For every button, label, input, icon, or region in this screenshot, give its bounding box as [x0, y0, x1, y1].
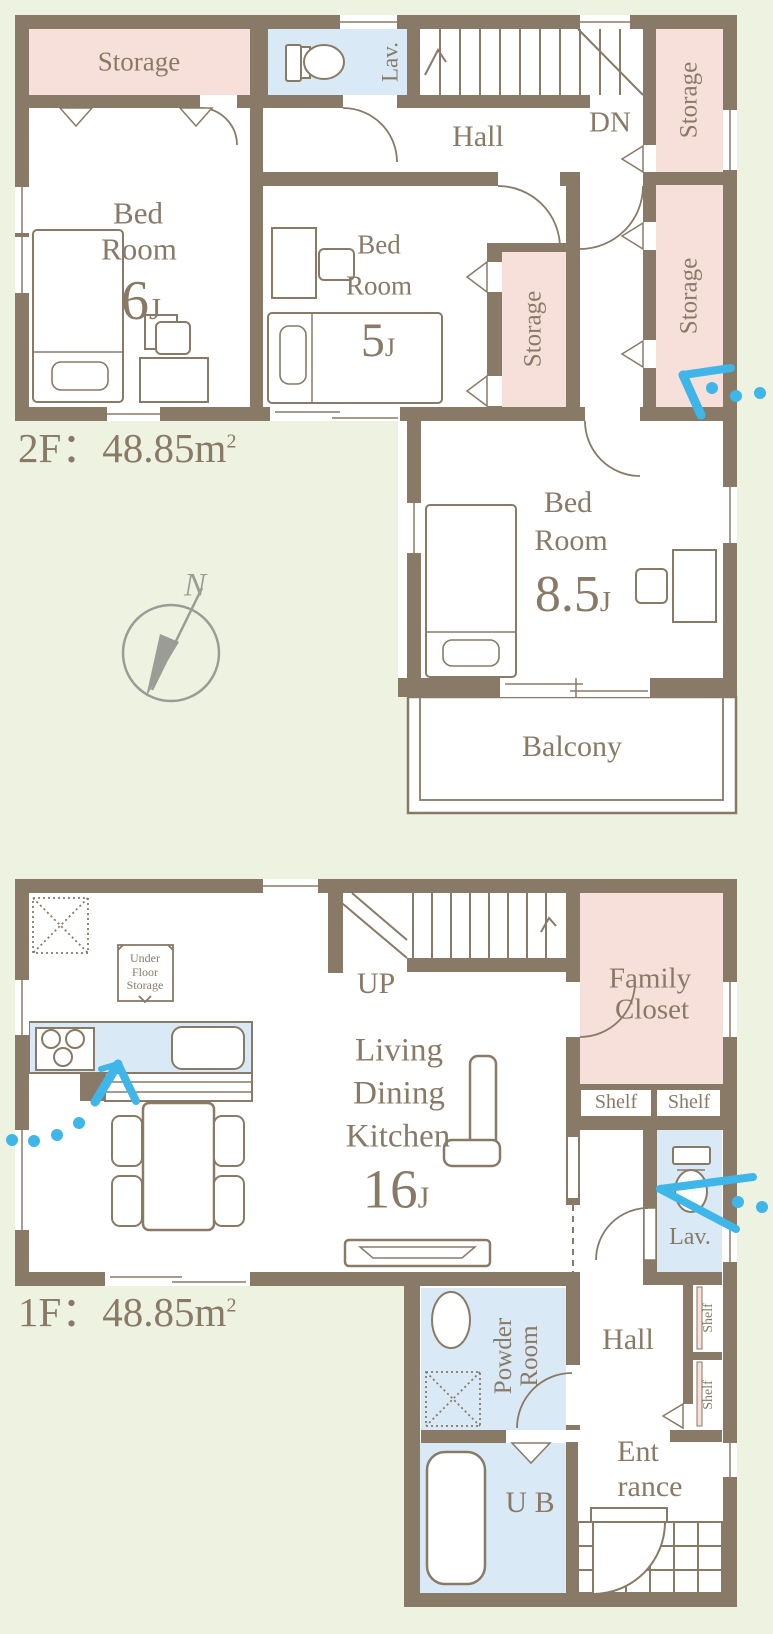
chair-icon-85j	[636, 569, 667, 603]
floor-plan-drawing	[0, 0, 773, 1634]
toilet-icon-2f	[286, 45, 344, 81]
dining-table-icon	[143, 1103, 214, 1230]
stove-icon	[36, 1028, 94, 1070]
bathtub-icon	[427, 1452, 485, 1584]
desk-icon-85j	[673, 550, 716, 622]
kitchen-sink-icon	[172, 1027, 244, 1069]
bed-icon-5j	[268, 313, 442, 403]
compass-icon	[123, 588, 219, 701]
f2-balcony	[408, 697, 736, 813]
bed-icon-85j	[426, 505, 516, 677]
chair-icon-6j	[156, 322, 190, 354]
desk-icon-6j	[140, 358, 208, 402]
bathroom-sink-icon	[432, 1292, 470, 1348]
floor-plan: Storage Lav. Hall DN Storage Storage Sto…	[0, 0, 773, 1634]
chair-icon-5j	[319, 249, 354, 280]
desk-icon-5j	[272, 228, 316, 298]
bed-icon-6j	[33, 230, 123, 402]
tv-icon	[345, 1240, 490, 1266]
